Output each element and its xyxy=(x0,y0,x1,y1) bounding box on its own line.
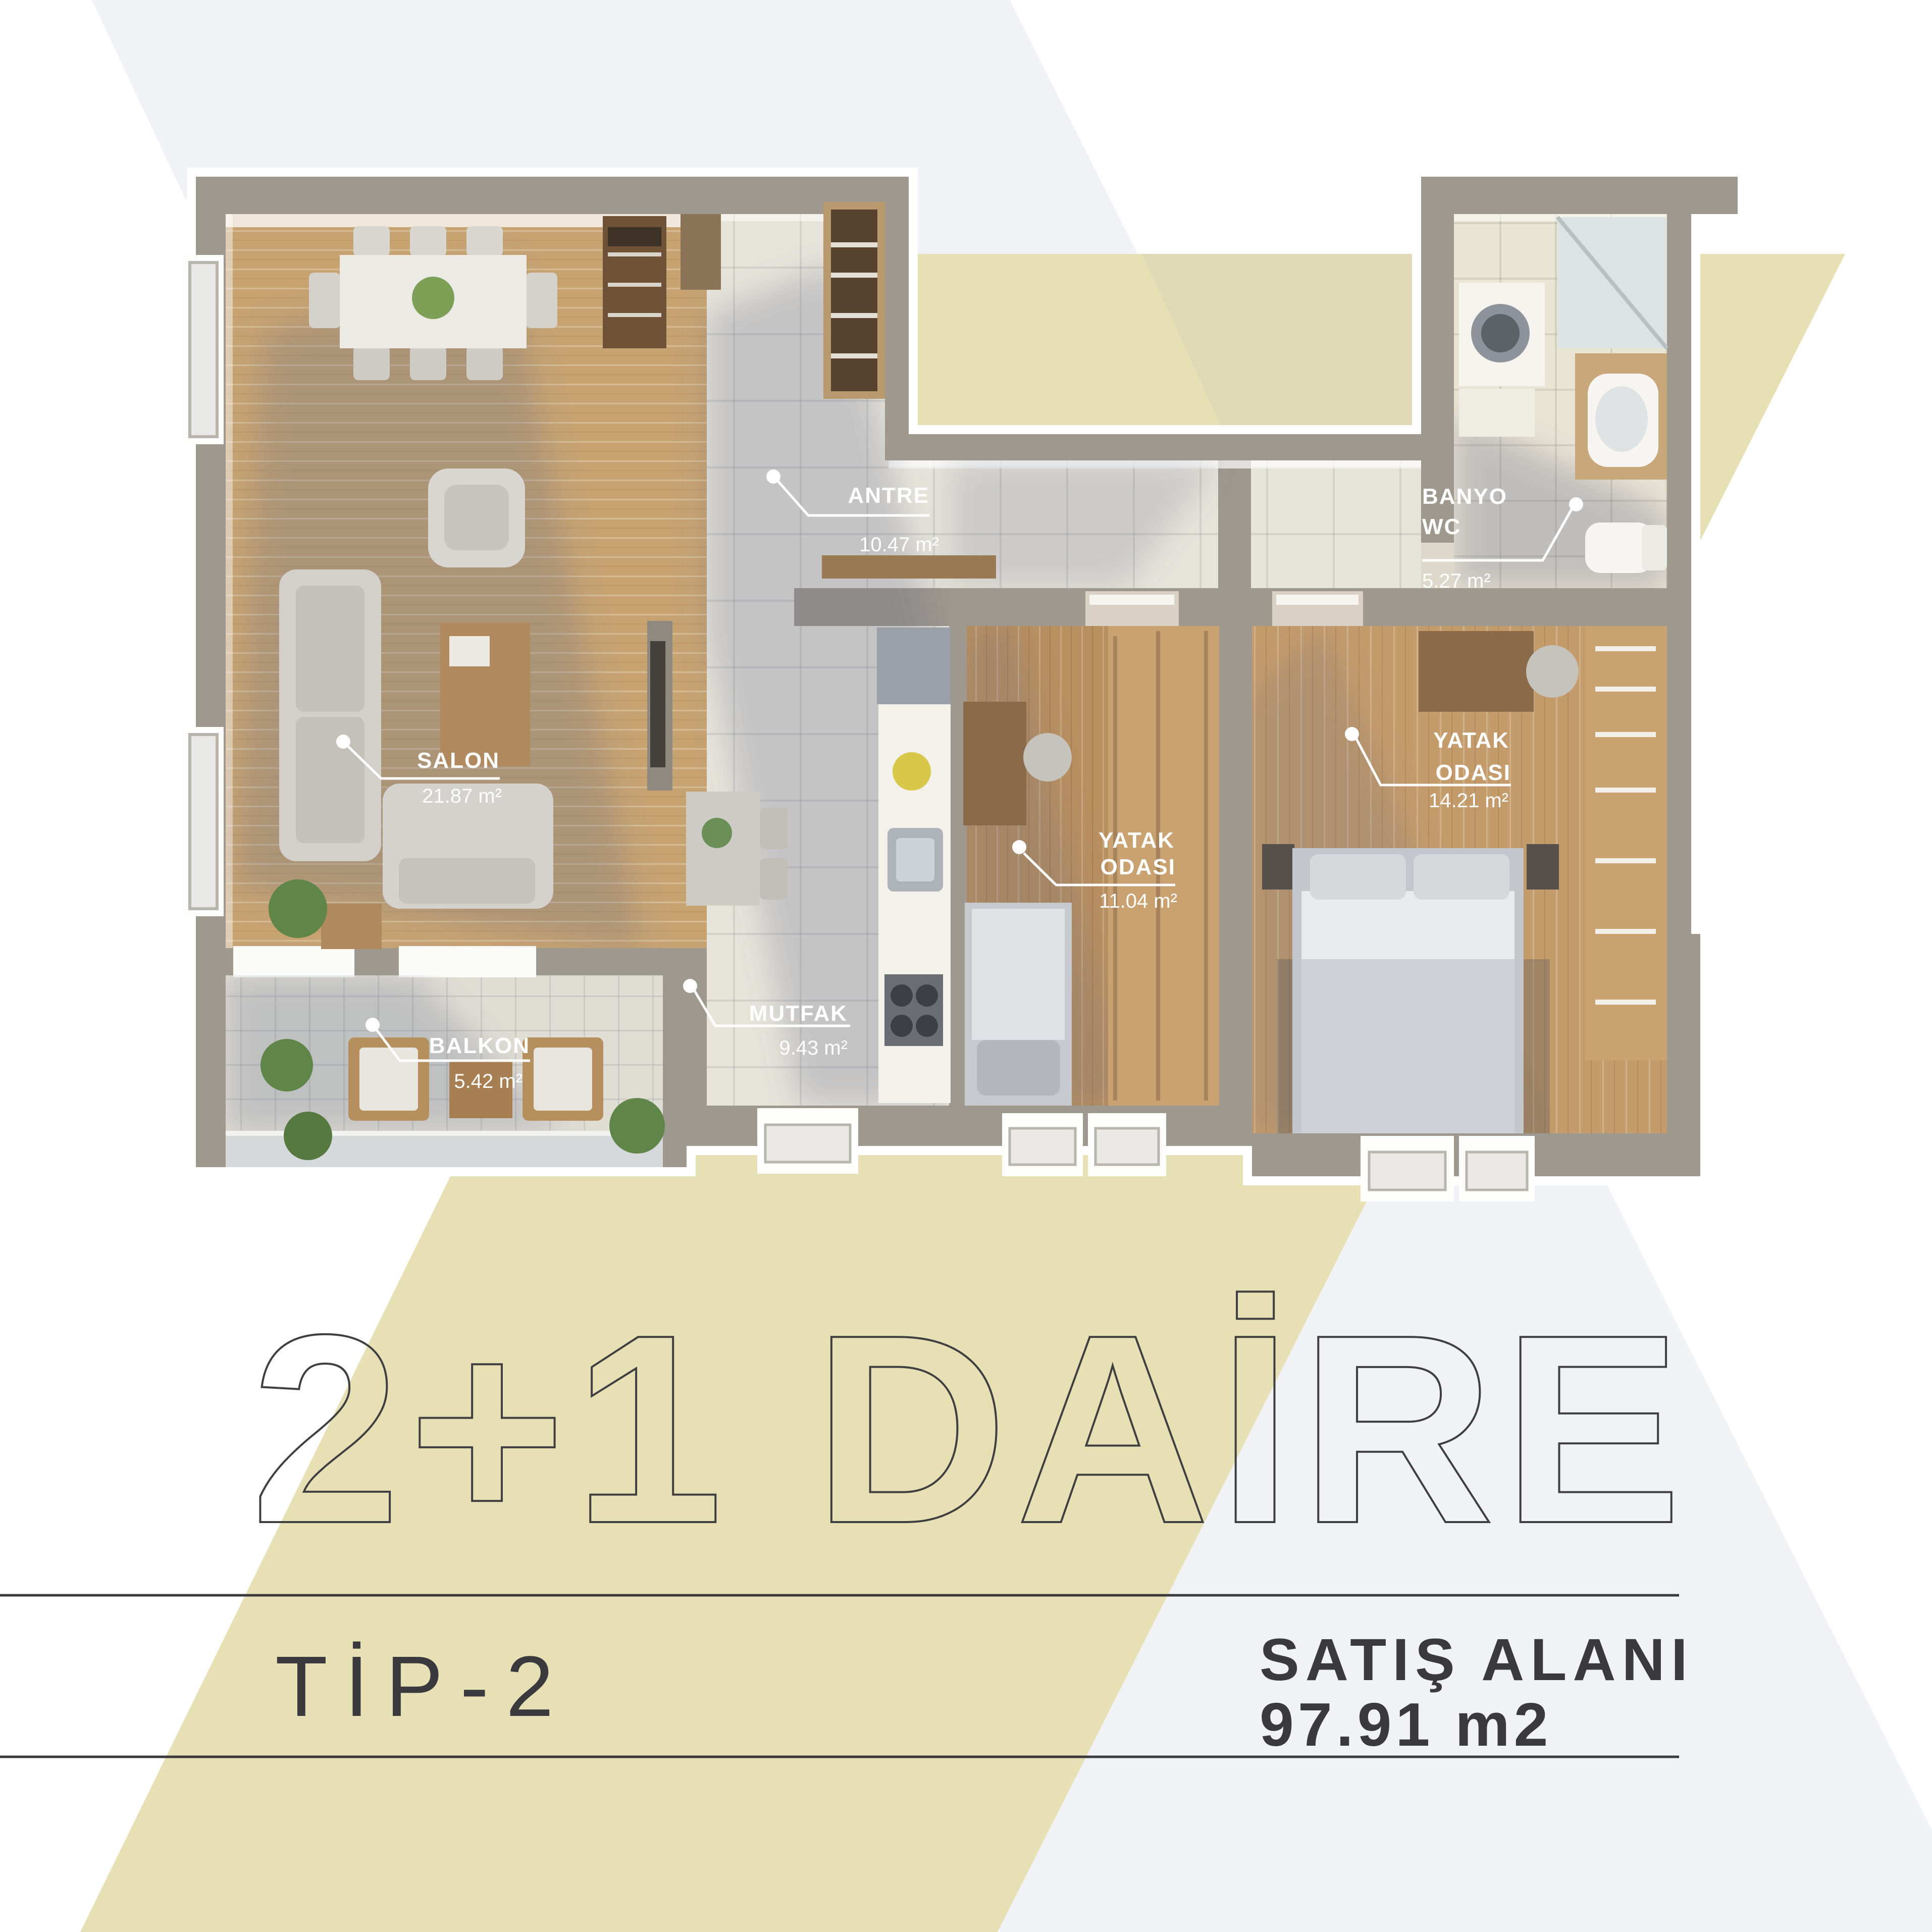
svg-text:YATAK: YATAK xyxy=(1099,828,1175,853)
svg-text:21.87 m²: 21.87 m² xyxy=(422,785,502,807)
svg-text:ANTRE: ANTRE xyxy=(848,483,929,508)
svg-text:BANYO: BANYO xyxy=(1422,484,1507,509)
svg-text:14.21 m²: 14.21 m² xyxy=(1429,790,1508,812)
svg-text:ODASI: ODASI xyxy=(1101,855,1176,879)
svg-text:WC: WC xyxy=(1422,514,1461,539)
svg-text:97.91 m2: 97.91 m2 xyxy=(1260,1690,1552,1759)
svg-text:11.04 m²: 11.04 m² xyxy=(1099,890,1177,912)
svg-text:5.27 m²: 5.27 m² xyxy=(1422,570,1491,592)
svg-text:10.47 m²: 10.47 m² xyxy=(859,534,939,556)
svg-text:TİP-2: TİP-2 xyxy=(275,1639,571,1735)
svg-text:9.43 m²: 9.43 m² xyxy=(779,1037,848,1059)
svg-text:BALKON: BALKON xyxy=(429,1033,530,1058)
svg-text:MUTFAK: MUTFAK xyxy=(749,1001,848,1026)
svg-text:SATIŞ ALANI: SATIŞ ALANI xyxy=(1260,1627,1694,1693)
svg-text:ODASI: ODASI xyxy=(1436,760,1511,785)
svg-text:SALON: SALON xyxy=(417,748,500,773)
svg-text:5.42 m²: 5.42 m² xyxy=(454,1070,523,1092)
svg-text:YATAK: YATAK xyxy=(1433,728,1509,753)
svg-text:2+1 DAİRE: 2+1 DAİRE xyxy=(251,1278,1690,1579)
